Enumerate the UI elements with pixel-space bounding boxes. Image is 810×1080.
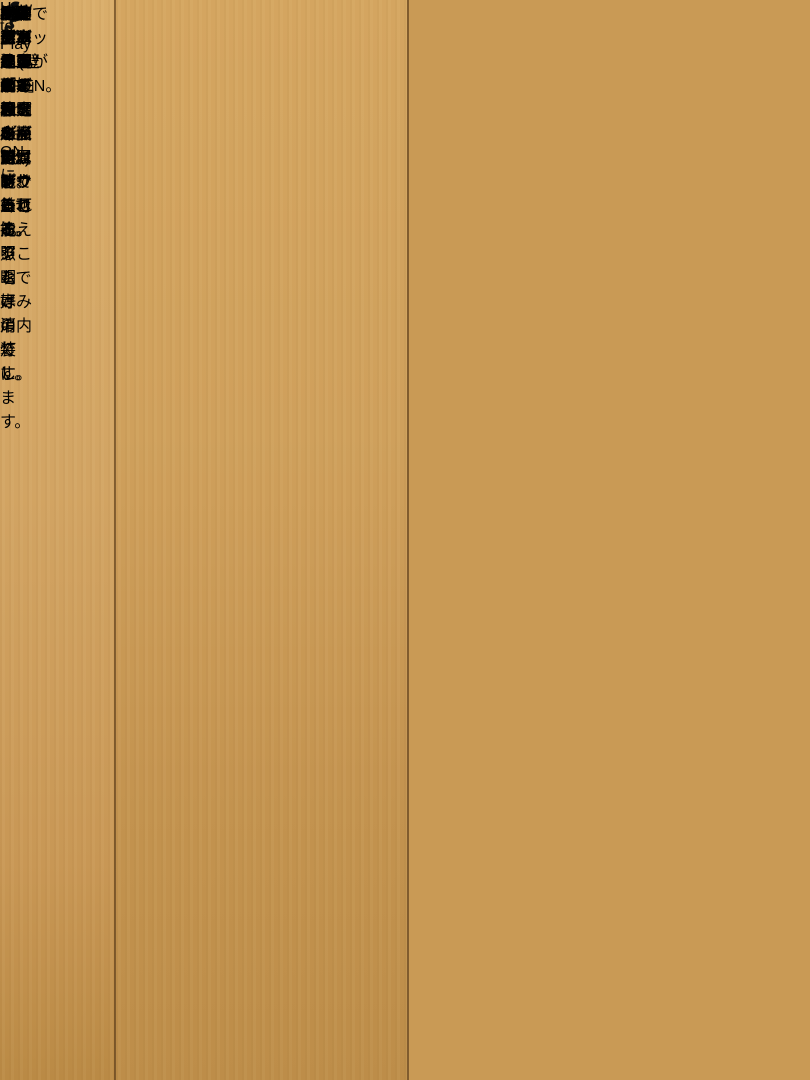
floor-plank [114, 0, 407, 1080]
floor-plank [407, 0, 708, 1080]
caption-line: ※動きが連動するなどの機能はありません。 [0, 0, 32, 240]
photo-of-product-box-on-floor: How to Play [0, 0, 810, 1080]
